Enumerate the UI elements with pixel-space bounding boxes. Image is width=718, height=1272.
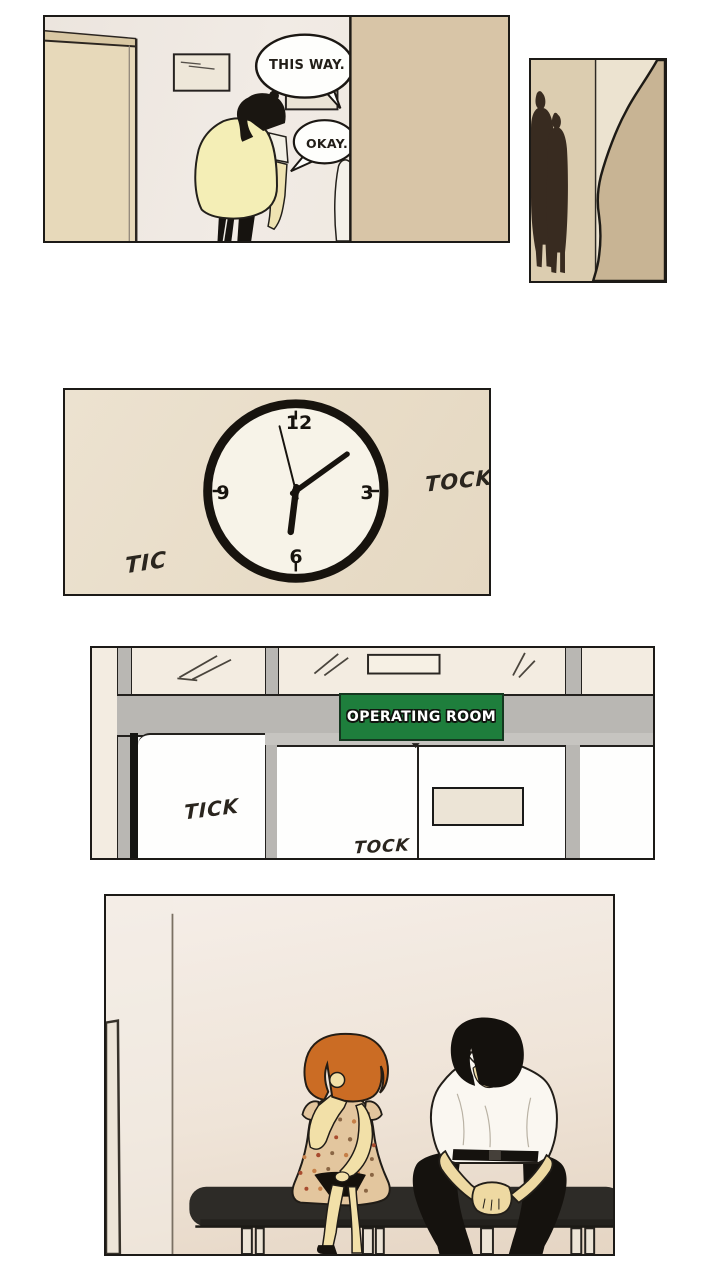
clock-numeral-9: 9 bbox=[215, 482, 231, 504]
hallway-art bbox=[45, 17, 508, 241]
belt-buckle bbox=[489, 1150, 501, 1160]
ceiling-light-fixture bbox=[368, 655, 439, 674]
comic-page: THIS WAY. OKAY. bbox=[0, 0, 718, 1272]
woman-hair bbox=[305, 1034, 388, 1102]
silhouettes-art bbox=[531, 60, 665, 281]
panel-operating-room: OPERATING ROOM TICK TOCK bbox=[90, 646, 655, 860]
foreground-wall bbox=[349, 17, 508, 241]
picture-frame bbox=[174, 54, 230, 90]
waiting-art bbox=[106, 896, 613, 1254]
white-coat-figure bbox=[335, 160, 351, 241]
ceiling-lights-art bbox=[92, 648, 653, 858]
panel-clock: 12 3 6 9 TIC TOCK bbox=[63, 388, 491, 596]
operating-room-sign-label: OPERATING ROOM bbox=[347, 709, 496, 725]
door bbox=[45, 31, 136, 241]
door-handle-mark bbox=[412, 743, 420, 748]
woman-shoe bbox=[317, 1245, 337, 1254]
panel-hallway: THIS WAY. OKAY. bbox=[43, 15, 510, 243]
operating-room-sign: OPERATING ROOM bbox=[339, 693, 504, 741]
panel-silhouettes bbox=[529, 58, 667, 283]
clock-numeral-6: 6 bbox=[287, 546, 305, 568]
walking-person bbox=[195, 91, 288, 241]
man-hands-clasped bbox=[472, 1182, 511, 1215]
dialogue-this-way: THIS WAY. bbox=[261, 59, 353, 73]
dialogue-okay: OKAY. bbox=[297, 137, 357, 151]
clock-numeral-3: 3 bbox=[359, 482, 375, 504]
clock-numeral-12: 12 bbox=[283, 412, 315, 434]
left-wall-structure bbox=[106, 1021, 120, 1254]
woman-hand-on-face bbox=[330, 1073, 345, 1088]
panel-waiting-bench bbox=[104, 894, 615, 1256]
ceiling-light-marks bbox=[177, 653, 534, 680]
man-hair bbox=[451, 1018, 524, 1088]
sfx-tock-2: TOCK bbox=[354, 837, 411, 859]
